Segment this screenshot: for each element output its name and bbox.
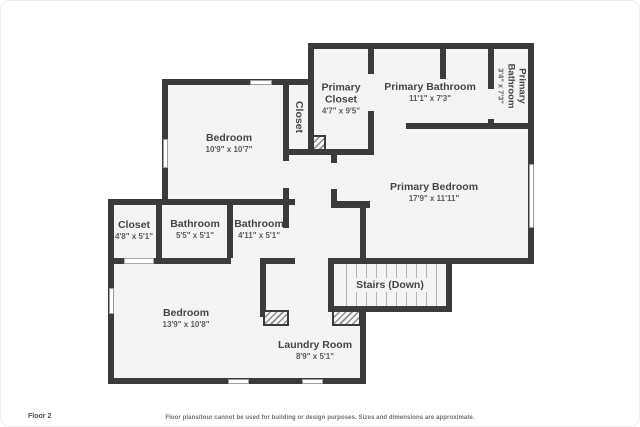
wall: [308, 43, 534, 49]
wall: [331, 201, 370, 208]
disclaimer-text: Floor plans/tour cannot be used for buil…: [1, 415, 639, 421]
wall: [328, 264, 334, 312]
wall: [406, 123, 534, 129]
wall: [328, 258, 534, 264]
room-label-stairs: Stairs (Down): [352, 278, 428, 292]
window: [228, 379, 249, 384]
door-opening: [231, 258, 260, 264]
wall: [227, 205, 233, 258]
wall: [446, 264, 452, 312]
wall: [360, 208, 366, 258]
wall: [331, 189, 337, 201]
wall: [331, 155, 337, 163]
window: [529, 164, 534, 228]
wall: [368, 111, 374, 155]
window: [250, 80, 272, 85]
wall: [368, 49, 374, 74]
wall: [156, 205, 162, 258]
door-hatch: [332, 310, 361, 326]
wall: [440, 49, 446, 79]
wall: [488, 49, 494, 89]
wall: [108, 199, 295, 205]
window: [302, 379, 323, 384]
floor-plan: Primary Closet 4'7" x 9'5" Primary Bathr…: [0, 0, 640, 427]
wall: [283, 188, 289, 228]
door-hatch: [263, 310, 289, 326]
wall: [260, 258, 266, 317]
wall: [283, 149, 374, 155]
wall: [528, 43, 534, 264]
window: [109, 288, 114, 314]
window: [163, 139, 168, 168]
wall: [162, 79, 314, 85]
cased-opening: [124, 258, 154, 264]
door-hatch: [312, 135, 326, 151]
wall: [488, 119, 494, 129]
